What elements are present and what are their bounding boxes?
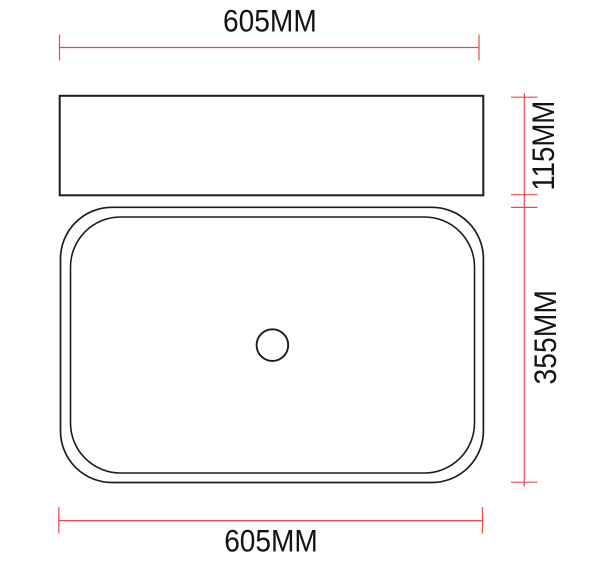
svg-text:115MM: 115MM — [526, 101, 561, 191]
svg-text:605MM: 605MM — [223, 4, 317, 39]
svg-text:605MM: 605MM — [224, 524, 318, 559]
svg-text:355MM: 355MM — [528, 290, 563, 384]
